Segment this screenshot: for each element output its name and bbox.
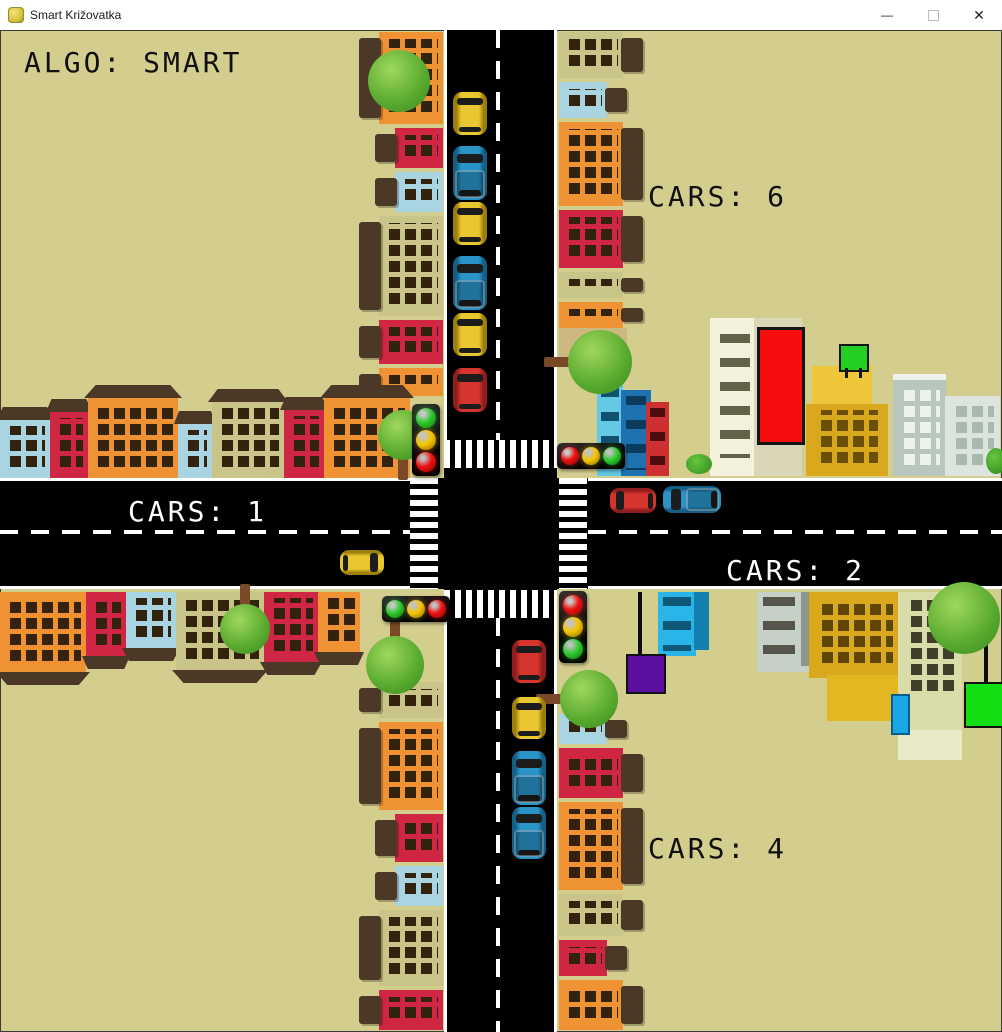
house-roof — [621, 986, 643, 1024]
house-windows — [564, 947, 602, 969]
house-body — [559, 302, 623, 328]
building-windows — [817, 600, 893, 668]
strip-house — [357, 720, 443, 812]
vehicle-truck — [512, 807, 546, 859]
row-house — [0, 592, 86, 685]
tree — [928, 582, 1000, 654]
sign-leg — [845, 368, 848, 378]
house-body — [264, 592, 318, 662]
house-windows — [93, 404, 173, 472]
house-roof — [82, 656, 130, 669]
vehicle-car — [453, 202, 487, 245]
vehicle-truck — [453, 146, 487, 200]
strip-house — [357, 864, 443, 908]
windshield — [457, 374, 483, 381]
house-body — [559, 32, 623, 78]
windshield — [516, 759, 542, 768]
strip-house — [559, 120, 645, 208]
rear-window — [518, 731, 540, 736]
building-strip — [357, 680, 443, 1032]
crosswalk-south — [444, 590, 557, 618]
traffic-lamp-yellow — [416, 430, 436, 450]
sign-green — [964, 682, 1002, 728]
house-body — [379, 320, 443, 364]
windshield — [457, 98, 483, 105]
traffic-lamp-red — [428, 600, 446, 618]
tree — [368, 50, 430, 112]
house-windows — [564, 309, 618, 321]
road-edge-line — [0, 478, 410, 481]
building — [827, 675, 901, 721]
windshield — [457, 208, 483, 215]
house-row — [0, 381, 410, 478]
house-windows — [564, 129, 618, 199]
road-edge-line — [0, 586, 410, 589]
house-roof — [621, 808, 643, 884]
house-windows — [400, 135, 438, 161]
bush — [986, 448, 1002, 474]
traffic-lamp-green — [416, 408, 436, 428]
house-roof — [621, 754, 643, 792]
rear-window — [343, 555, 348, 571]
building-strip — [559, 712, 645, 1032]
row-house — [86, 592, 126, 669]
traffic-lamp-green — [603, 447, 621, 465]
crosswalk-north — [444, 440, 557, 468]
traffic-lamp-red — [416, 452, 436, 472]
tree-crown — [928, 582, 1000, 654]
house-windows — [564, 809, 618, 883]
house-body — [559, 272, 623, 298]
house-roof — [359, 728, 381, 804]
house-body — [379, 722, 443, 810]
road-edge-line — [554, 30, 557, 440]
row-house — [178, 411, 212, 478]
house-roof — [621, 38, 643, 72]
windshield — [671, 489, 681, 510]
house-windows — [564, 901, 618, 929]
lane-divider — [496, 618, 500, 1032]
road-edge-line — [554, 618, 557, 1032]
crosswalk-east — [559, 478, 587, 589]
strip-house — [559, 270, 645, 300]
rear-window — [518, 675, 540, 680]
building-windows — [720, 334, 750, 458]
house-windows — [564, 217, 618, 261]
house-windows — [5, 426, 45, 472]
tree — [366, 636, 424, 694]
house-windows — [131, 598, 171, 642]
house-body — [178, 424, 212, 478]
traffic-light-se — [559, 591, 587, 663]
building-windows — [663, 597, 691, 651]
house-roof — [621, 216, 643, 262]
strip-house — [357, 812, 443, 864]
building — [801, 592, 809, 666]
windshield — [516, 703, 542, 710]
house-roof — [260, 662, 322, 675]
rear-window — [459, 348, 481, 353]
traffic-lamp-yellow — [563, 617, 583, 637]
tree-crown — [568, 330, 632, 394]
tree-crown — [560, 670, 618, 728]
rear-window — [459, 237, 481, 242]
cargo-box — [455, 170, 485, 198]
house-body — [559, 82, 607, 118]
house-body — [559, 748, 623, 798]
vehicle-car — [610, 488, 656, 513]
app-window: Smart Križovatka — ✕ — [0, 0, 1002, 1032]
rear-window — [459, 404, 481, 409]
strip-house — [357, 214, 443, 318]
house-body — [395, 866, 443, 906]
strip-house — [357, 988, 443, 1032]
house-body — [0, 420, 50, 478]
vehicle-truck — [512, 751, 546, 805]
lane-divider — [0, 530, 410, 534]
traffic-lamp-yellow — [407, 600, 425, 618]
vehicle-car — [512, 697, 546, 739]
maximize-icon — [928, 10, 939, 21]
cargo-box — [514, 830, 544, 857]
row-house — [0, 407, 50, 478]
lane-divider — [496, 30, 500, 440]
crosswalk-west — [410, 478, 438, 589]
minimize-button[interactable]: — — [864, 0, 910, 30]
window-controls: — ✕ — [864, 0, 1002, 30]
strip-house — [559, 978, 645, 1032]
cargo-box — [455, 280, 485, 308]
traffic-lamp-green — [386, 600, 404, 618]
strip-house — [559, 892, 645, 938]
house-roof — [46, 399, 92, 412]
house-body — [559, 210, 623, 268]
maximize-button[interactable] — [910, 0, 956, 30]
house-roof — [375, 178, 397, 206]
house-windows — [5, 598, 81, 666]
house-windows — [564, 279, 618, 291]
house-body — [379, 990, 443, 1030]
building-windows — [650, 408, 665, 470]
house-body — [126, 592, 176, 648]
house-roof — [314, 652, 364, 665]
building-windows — [626, 396, 646, 470]
cars-north-label: CARS: 6 — [648, 180, 787, 213]
house-roof — [621, 278, 643, 292]
title-bar[interactable]: Smart Križovatka — ✕ — [0, 0, 1002, 30]
building-windows — [899, 386, 940, 470]
house-roof — [621, 128, 643, 200]
strip-house — [559, 800, 645, 892]
simulation-canvas: ALGO: SMART CARS: 6 CARS: 1 CARS: 2 CARS… — [0, 30, 1002, 1032]
strip-house — [357, 908, 443, 988]
sign-leg — [859, 368, 862, 378]
house-roof — [359, 326, 381, 358]
house-windows — [384, 327, 438, 357]
house-body — [0, 592, 86, 672]
door-blue — [891, 694, 910, 735]
windshield — [616, 491, 624, 510]
tree — [568, 330, 632, 394]
vehicle-car — [453, 368, 487, 412]
traffic-lamp-yellow — [582, 447, 600, 465]
house-roof — [84, 385, 182, 398]
sign-pole — [638, 592, 642, 658]
cargo-box — [686, 488, 719, 510]
house-body — [559, 940, 607, 976]
strip-house — [357, 170, 443, 214]
house-roof — [174, 411, 216, 424]
building-tower — [893, 380, 946, 476]
house-roof — [0, 407, 54, 420]
windshield — [516, 646, 542, 653]
cars-east-label: CARS: 2 — [726, 554, 865, 587]
house-windows — [183, 430, 207, 472]
rear-window — [459, 127, 481, 132]
house-roof — [605, 946, 627, 970]
traffic-lamp-red — [561, 447, 579, 465]
billboard — [757, 327, 805, 445]
strip-house — [559, 300, 645, 330]
house-roof — [375, 872, 397, 900]
house-windows — [289, 416, 319, 472]
cars-west-label: CARS: 1 — [128, 495, 267, 528]
house-roof — [0, 672, 90, 685]
house-windows — [323, 598, 355, 646]
strip-house — [559, 80, 645, 120]
lane-divider — [588, 530, 1002, 534]
tree — [560, 670, 618, 728]
house-windows — [400, 179, 438, 205]
house-body — [50, 412, 88, 478]
house-windows — [55, 418, 83, 472]
house-roof — [280, 397, 328, 410]
strip-house — [559, 30, 645, 80]
building — [809, 592, 901, 678]
windshield — [516, 814, 542, 823]
vehicle-car — [453, 92, 487, 135]
house-row — [0, 592, 360, 689]
tree — [220, 604, 270, 654]
building — [806, 404, 888, 476]
house-roof — [208, 389, 288, 402]
strip-house — [357, 126, 443, 170]
rear-window — [648, 493, 654, 509]
house-windows — [91, 598, 121, 650]
tree-crown — [368, 50, 430, 112]
house-windows — [564, 755, 618, 791]
strip-house — [559, 208, 645, 270]
row-house — [318, 592, 360, 665]
traffic-light-sw — [382, 596, 450, 622]
vehicle-car — [512, 640, 546, 683]
tree-crown — [366, 636, 424, 694]
windshield — [457, 154, 483, 163]
house-body — [559, 802, 623, 890]
bush — [686, 454, 712, 474]
house-windows — [384, 729, 438, 803]
house-windows — [384, 997, 438, 1023]
sign-green — [839, 344, 869, 372]
sign-purple — [626, 654, 666, 694]
house-body — [284, 410, 324, 478]
house-roof — [605, 88, 627, 112]
house-body — [559, 122, 623, 206]
algo-label: ALGO: SMART — [24, 46, 242, 79]
house-windows — [564, 39, 618, 71]
house-roof — [375, 820, 397, 856]
building — [694, 592, 709, 650]
house-body — [559, 980, 623, 1030]
window-title: Smart Križovatka — [30, 8, 121, 22]
traffic-lamp-green — [563, 639, 583, 659]
strip-house — [559, 938, 645, 978]
building — [812, 366, 872, 408]
road-edge-line — [588, 478, 1002, 481]
house-roof — [359, 996, 381, 1024]
traffic-light-nw — [412, 404, 440, 476]
traffic-lamp-red — [563, 595, 583, 615]
vehicle-car — [340, 550, 384, 575]
windshield — [457, 319, 483, 326]
row-house — [212, 389, 284, 478]
house-roof — [320, 385, 414, 398]
building-strip — [559, 30, 645, 330]
house-windows — [217, 408, 279, 472]
building-tower — [646, 402, 669, 476]
house-windows — [564, 987, 618, 1023]
pygame-app-icon — [8, 7, 24, 23]
strip-house — [559, 746, 645, 800]
building-windows — [816, 410, 878, 468]
house-windows — [384, 223, 438, 309]
traffic-light-ne — [557, 443, 625, 469]
house-windows — [400, 873, 438, 899]
house-windows — [269, 598, 313, 656]
house-body — [379, 216, 443, 316]
row-house — [126, 592, 176, 661]
house-body — [212, 402, 284, 478]
house-roof — [122, 648, 180, 661]
vehicle-car — [453, 313, 487, 356]
house-body — [379, 910, 443, 986]
vehicle-truck — [663, 486, 721, 513]
windshield — [457, 264, 483, 273]
close-button[interactable]: ✕ — [956, 0, 1002, 30]
building-windows — [763, 597, 795, 664]
house-body — [86, 592, 126, 656]
house-body — [88, 398, 178, 478]
row-house — [88, 385, 178, 478]
house-body — [559, 894, 623, 936]
cars-south-label: CARS: 4 — [648, 832, 787, 865]
vehicle-truck — [453, 256, 487, 310]
tree-crown — [220, 604, 270, 654]
house-roof — [375, 134, 397, 162]
cargo-box — [514, 775, 544, 803]
house-body — [395, 128, 443, 168]
row-house — [264, 592, 318, 675]
house-windows — [400, 821, 438, 855]
house-body — [395, 172, 443, 212]
building-tower — [658, 592, 696, 656]
house-roof — [359, 222, 381, 310]
house-windows — [384, 917, 438, 979]
house-roof — [621, 308, 643, 322]
house-roof — [621, 900, 643, 930]
house-body — [318, 592, 360, 652]
road-edge-line — [444, 618, 447, 1032]
house-roof — [172, 670, 268, 683]
strip-house — [357, 318, 443, 366]
road-edge-line — [444, 30, 447, 440]
house-roof — [359, 916, 381, 980]
row-house — [50, 399, 88, 478]
house-windows — [564, 89, 602, 111]
windshield — [370, 553, 377, 572]
row-house — [284, 397, 324, 478]
house-body — [395, 814, 443, 862]
